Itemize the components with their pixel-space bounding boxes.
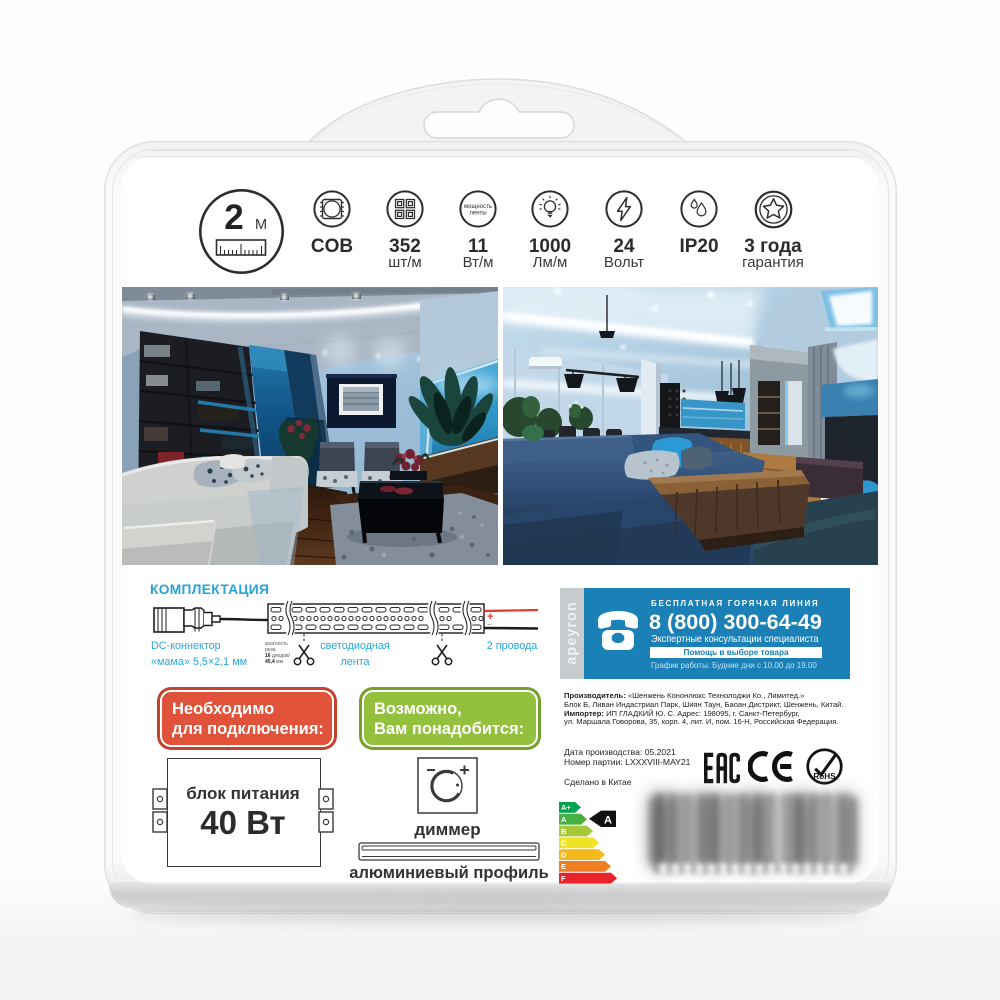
svg-text:RoHS: RoHS <box>813 772 836 781</box>
svg-text:−: − <box>487 620 492 629</box>
svg-text:A: A <box>604 814 612 826</box>
svg-text:М: М <box>255 217 267 233</box>
svg-text:45,4 мм: 45,4 мм <box>265 659 284 665</box>
svg-text:ленты: ленты <box>469 211 486 217</box>
svg-text:A: A <box>561 815 567 824</box>
svg-text:«мама» 5,5×2,1 мм: «мама» 5,5×2,1 мм <box>151 656 247 668</box>
svg-text:лента: лента <box>340 656 369 668</box>
svg-text:D: D <box>561 850 567 859</box>
svg-text:B: B <box>561 827 567 836</box>
svg-text:F: F <box>561 874 566 883</box>
svg-text:2: 2 <box>224 198 243 237</box>
svg-text:2 провода: 2 провода <box>487 640 538 652</box>
svg-text:A+: A+ <box>561 803 571 812</box>
svg-text:E: E <box>561 862 566 871</box>
svg-text:DC-коннектор: DC-коннектор <box>151 640 221 652</box>
svg-text:C: C <box>561 839 567 848</box>
svg-text:светодиодная: светодиодная <box>320 640 390 652</box>
svg-text:мощность: мощность <box>464 204 492 210</box>
